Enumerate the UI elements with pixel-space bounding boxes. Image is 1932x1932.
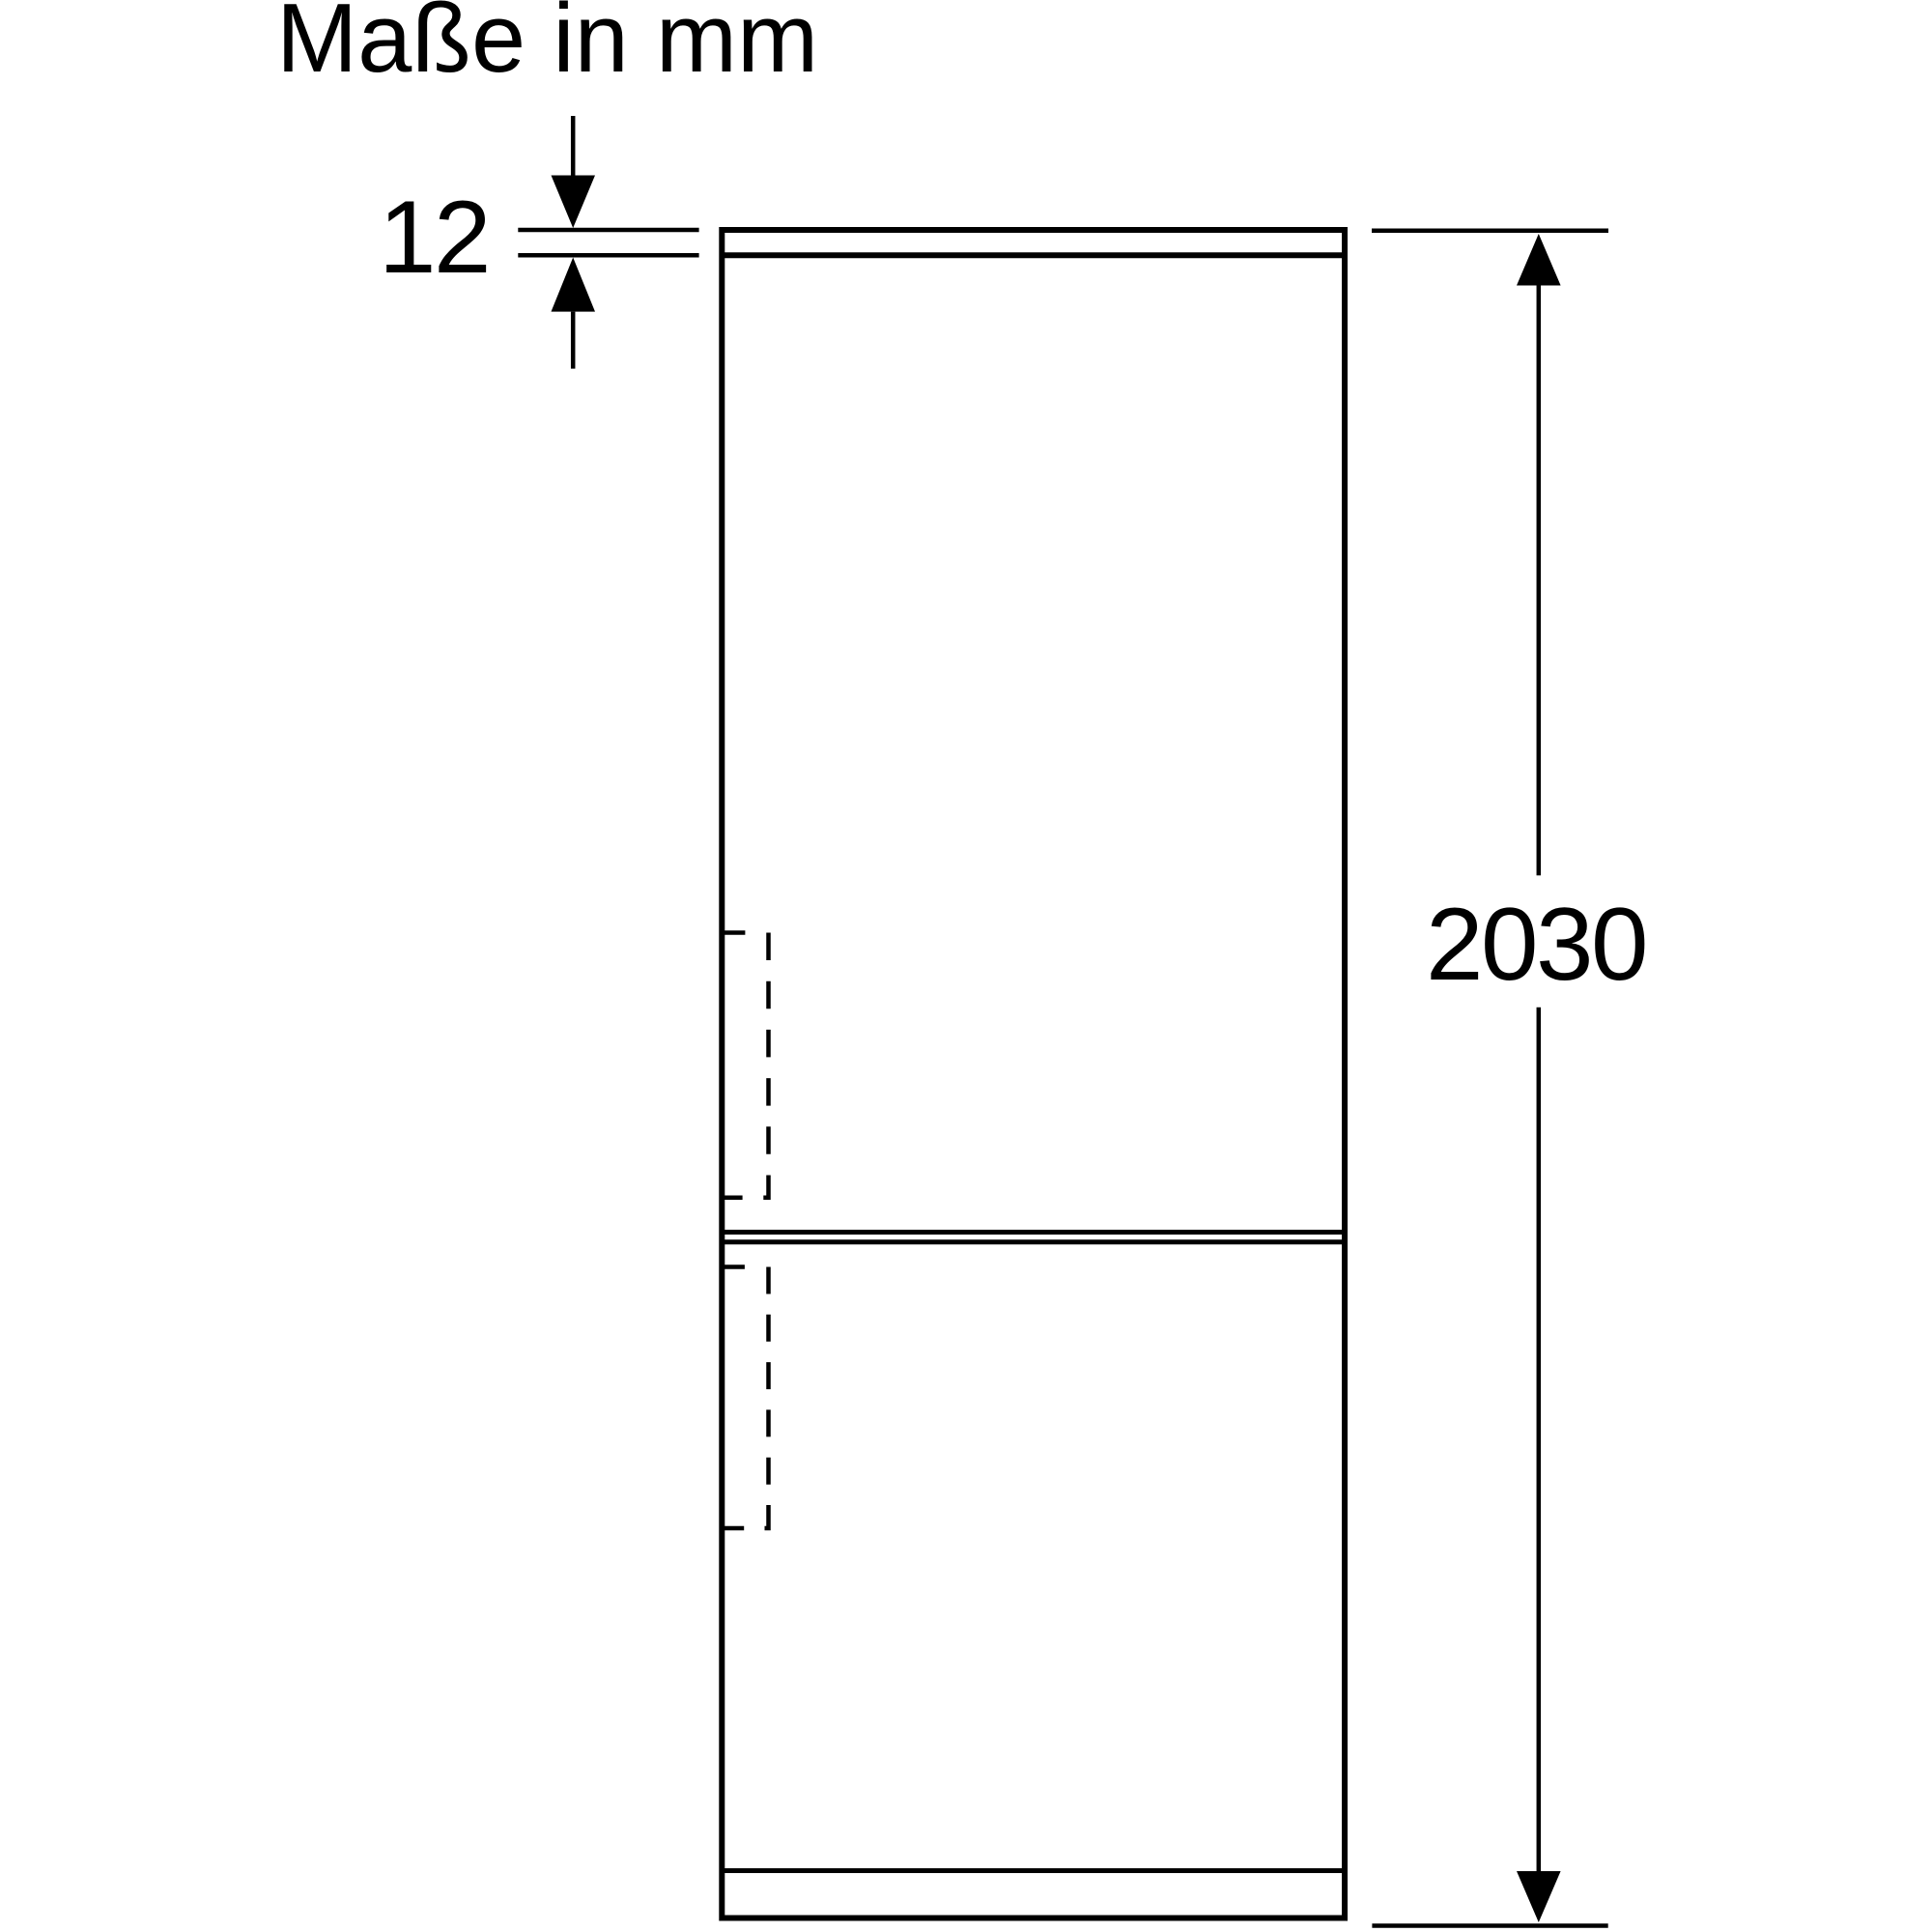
svg-text:12: 12 <box>379 179 489 295</box>
svg-text:2030: 2030 <box>1426 886 1646 1002</box>
svg-text:Maße in mm: Maße in mm <box>276 0 818 93</box>
